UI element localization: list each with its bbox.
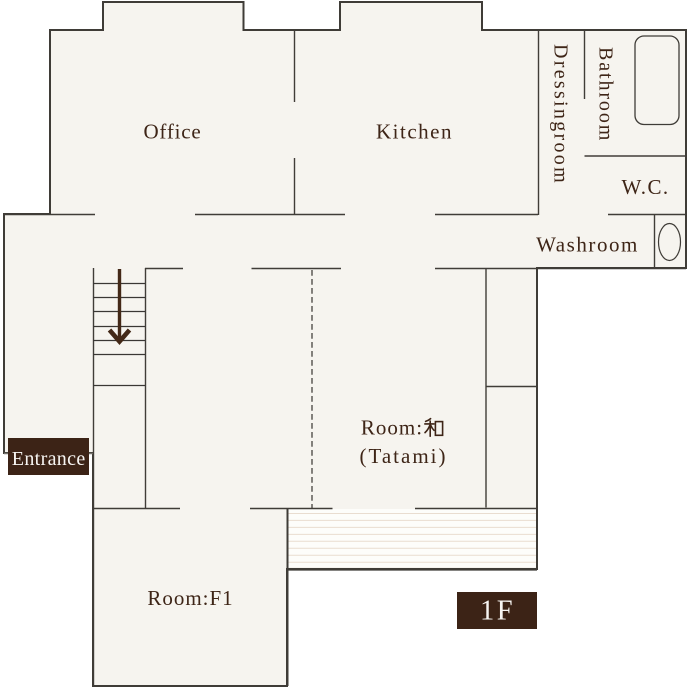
- svg-text:Kitchen: Kitchen: [376, 119, 453, 143]
- svg-text:(Tatami): (Tatami): [360, 444, 448, 468]
- svg-text:Office: Office: [143, 120, 201, 144]
- svg-text:1F: 1F: [480, 596, 515, 627]
- svg-text:Room:F1: Room:F1: [147, 586, 233, 610]
- svg-text:Room:: Room:: [361, 416, 423, 440]
- svg-text:Dressingroom: Dressingroom: [550, 44, 572, 185]
- svg-text:W.C.: W.C.: [622, 175, 670, 199]
- svg-text:Entrance: Entrance: [12, 448, 86, 470]
- svg-text:Bathroom: Bathroom: [595, 47, 617, 142]
- svg-text:Washroom: Washroom: [536, 233, 639, 257]
